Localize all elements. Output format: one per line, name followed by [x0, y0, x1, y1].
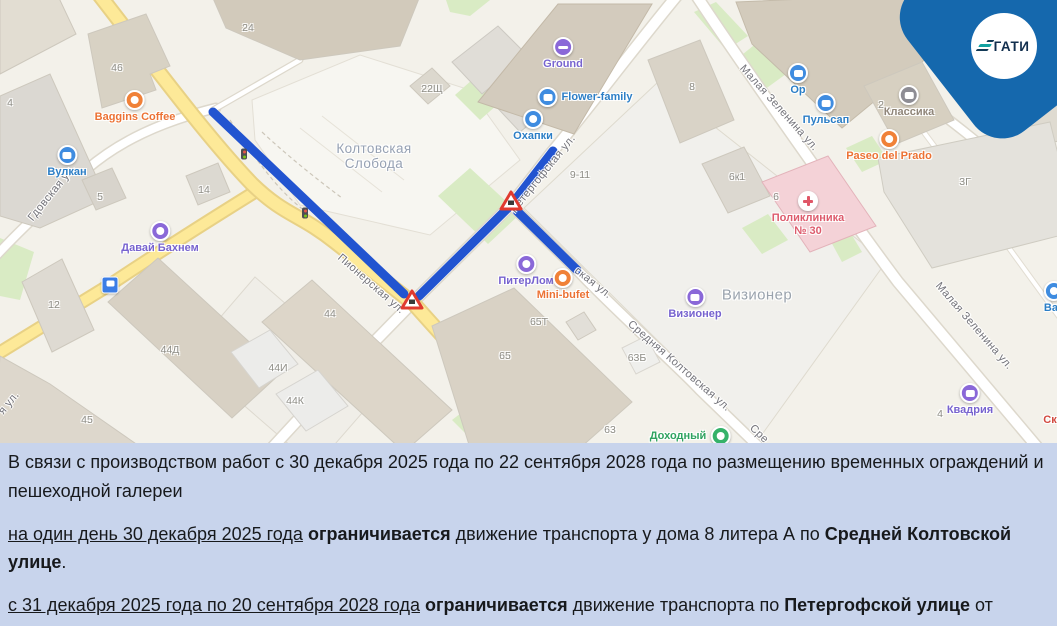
- city-map: Колтовская Слобода Визионер Гдовская ул.…: [0, 0, 1057, 443]
- poi-klassika: Классика: [884, 85, 934, 118]
- cafe-icon: [553, 268, 573, 288]
- closure-notice-panel: В связи с производством работ с 30 декаб…: [0, 443, 1057, 626]
- notice-paragraph-2: на один день 30 декабря 2025 года ограни…: [8, 520, 1049, 578]
- building-number: 14: [198, 184, 210, 196]
- area-label: Визионер: [722, 287, 792, 304]
- shop-bag-icon: [788, 63, 808, 83]
- building-icon: [710, 426, 730, 443]
- building-number: 22Щ: [421, 83, 443, 95]
- poi-mini-bufet: Mini-bufet: [537, 268, 590, 301]
- briefcase-icon: [685, 287, 705, 307]
- briefcase-icon: [960, 383, 980, 403]
- poi-vulkan: Вулкан: [47, 145, 86, 178]
- building-number: 44К: [286, 395, 304, 407]
- building-number: 65: [499, 350, 511, 362]
- building-number: 44И: [268, 362, 287, 374]
- bus-stop-icon: [102, 277, 119, 294]
- building-number: 12: [48, 299, 60, 311]
- building-number: 46: [111, 62, 123, 74]
- shopping-cart-icon: [538, 87, 558, 107]
- district-label: Колтовская Слобода: [314, 141, 434, 171]
- poi-kvadria: Квадрия: [947, 383, 993, 416]
- poi-ground: Ground: [543, 37, 583, 70]
- gati-logo: ГАТИ: [971, 13, 1037, 79]
- flag-icon: [899, 85, 919, 105]
- announcement-image: Колтовская Слобода Визионер Гдовская ул.…: [0, 0, 1057, 626]
- poi-pulsap: Пульсап: [803, 93, 850, 126]
- traffic-light-icon: [302, 208, 308, 219]
- building-number: 44: [324, 308, 336, 320]
- flower-shop-icon: [523, 109, 543, 129]
- car-service-icon: [57, 145, 77, 165]
- building-number: 4: [7, 97, 13, 109]
- building-number: 63: [604, 424, 616, 436]
- gati-logo-text: ГАТИ: [994, 39, 1030, 54]
- gati-logo-stripes-icon: [975, 40, 994, 51]
- poi-davay-bahnem: Давай Бахнем: [121, 221, 198, 254]
- building-number: 4: [937, 408, 943, 420]
- building-number: 9-11: [570, 169, 590, 181]
- building-number: 45: [81, 414, 93, 426]
- traffic-light-icon: [241, 149, 247, 160]
- notice-paragraph-1: В связи с производством работ с 30 декаб…: [8, 448, 1049, 506]
- shop-icon: [516, 254, 536, 274]
- notice-paragraph-3: с 31 декабря 2025 года по 20 сентября 20…: [8, 591, 1049, 626]
- bar-icon: [150, 221, 170, 241]
- poi-or: Ор: [788, 63, 808, 96]
- poi-paseo-del-prado: Paseo del Prado: [846, 129, 932, 162]
- poi-ohapki: Охапки: [513, 109, 553, 142]
- restaurant-icon: [879, 129, 899, 149]
- building-number: 6к1: [729, 171, 745, 183]
- poi-baggins-coffee: Baggins Coffee: [95, 90, 176, 123]
- shop-bag-icon: [816, 93, 836, 113]
- roadworks-warning-icon: [499, 190, 523, 216]
- building-number: 24: [242, 22, 254, 34]
- building-number: 44Д: [161, 344, 180, 356]
- shop-icon: [1044, 281, 1057, 301]
- building-number: 3Г: [959, 176, 971, 188]
- coffee-icon: [125, 90, 145, 110]
- medical-cross-icon: [798, 191, 818, 211]
- poi-flower-family: Flower-family: [538, 87, 633, 107]
- poi-vizioner: Визионер: [668, 287, 721, 320]
- poi-poliklinika-30: Поликлиника № 30: [767, 191, 849, 237]
- building-number: 65Т: [530, 316, 548, 328]
- poi-dohodny: Доходный: [650, 426, 731, 443]
- poi-label-partial: Ск: [1043, 414, 1056, 426]
- roadworks-warning-icon: [400, 289, 424, 315]
- poi-vas: Вас: [1044, 281, 1057, 314]
- music-venue-icon: [553, 37, 573, 57]
- building-number: 5: [97, 191, 103, 203]
- building-number: 8: [689, 81, 695, 93]
- building-number: 63Б: [628, 352, 647, 364]
